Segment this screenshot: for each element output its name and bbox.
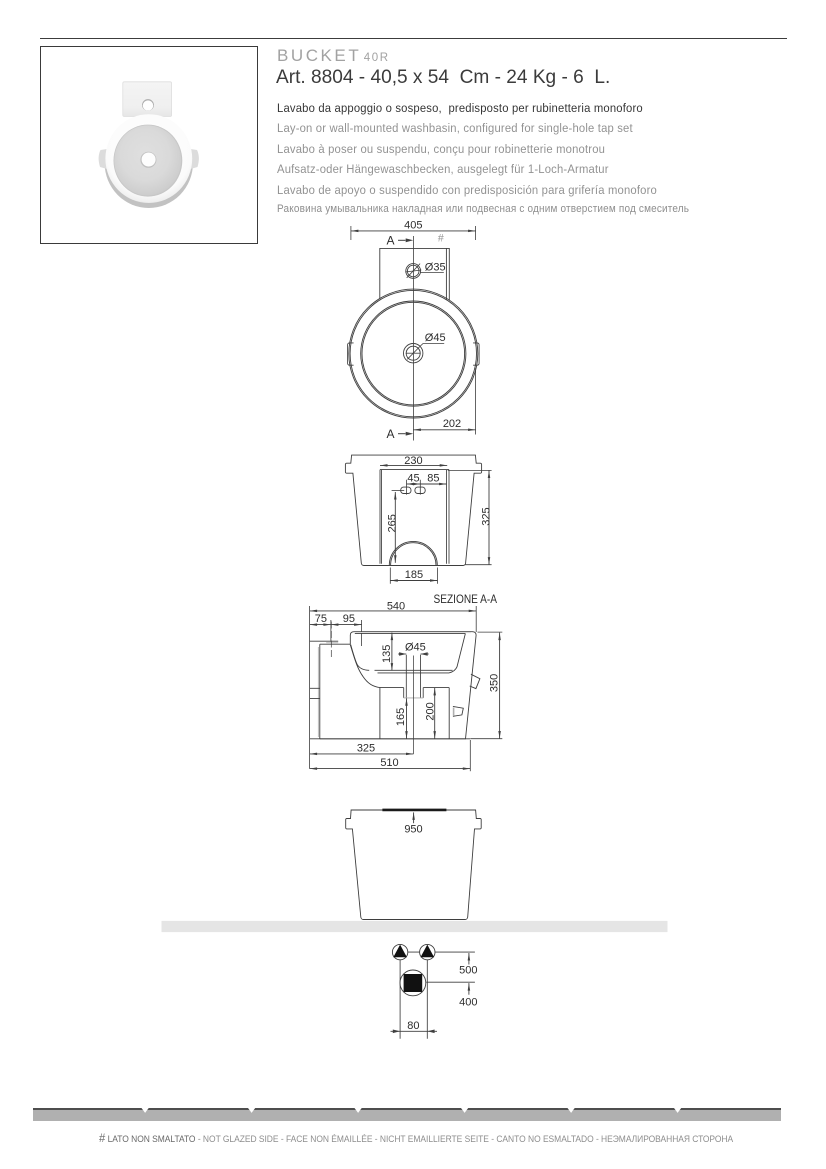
svg-text:A: A [386, 234, 394, 248]
svg-text:202: 202 [443, 418, 461, 430]
svg-text:350: 350 [489, 674, 501, 692]
svg-text:500: 500 [459, 964, 477, 976]
svg-text:200: 200 [424, 702, 436, 720]
svg-text:325: 325 [357, 742, 375, 754]
svg-text:185: 185 [405, 569, 423, 581]
svg-text:#: # [438, 233, 444, 245]
svg-text:Ø45: Ø45 [405, 641, 426, 653]
svg-text:510: 510 [380, 757, 398, 769]
svg-text:95: 95 [343, 613, 355, 625]
svg-text:A: A [386, 427, 394, 441]
svg-text:265: 265 [387, 514, 399, 532]
svg-text:400: 400 [459, 996, 477, 1008]
svg-text:75: 75 [315, 613, 327, 625]
svg-text:325: 325 [480, 507, 492, 525]
svg-text:405: 405 [404, 220, 422, 232]
svg-text:SEZIONE A-A: SEZIONE A-A [434, 592, 498, 606]
svg-text:Ø35: Ø35 [425, 261, 446, 273]
svg-text:540: 540 [387, 600, 405, 612]
svg-text:950: 950 [404, 824, 422, 836]
svg-text:135: 135 [381, 645, 393, 663]
svg-text:80: 80 [407, 1020, 419, 1032]
svg-text:Ø45: Ø45 [425, 332, 446, 344]
svg-text:165: 165 [395, 708, 407, 726]
svg-text:45: 45 [407, 472, 419, 484]
svg-text:230: 230 [404, 455, 422, 467]
svg-text:85: 85 [427, 472, 439, 484]
